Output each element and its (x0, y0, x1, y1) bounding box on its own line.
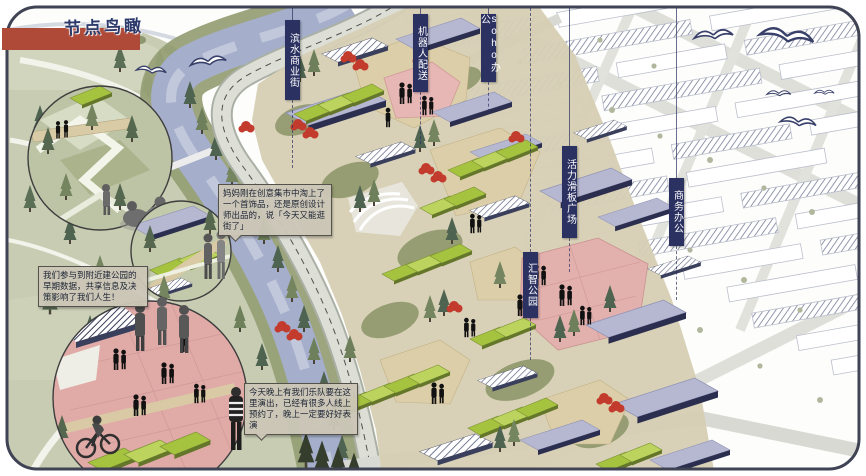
aerial-scene (0, 0, 866, 476)
leader-line (420, 8, 421, 14)
leader-line-dashed (530, 318, 531, 360)
page-title: 节点鸟瞰 (64, 12, 145, 40)
leader-line (676, 8, 677, 178)
leader-line (569, 8, 570, 146)
label-text: 机器人配送 (413, 14, 428, 92)
leader-line-dashed (420, 92, 421, 144)
label-text: 汇智公园 (523, 252, 538, 318)
leader-line (488, 8, 489, 14)
label-waterfront-street: 滨水商业街 (285, 20, 300, 100)
callout-participation: 我们参与到附近建公园的早期数据，共享信息及决策影响了我们人生！ (38, 266, 148, 307)
callout-text: 今天晚上有我们乐队要在这里演出，已经有很多人线上预约了，晚上一定要好好表演 (249, 387, 351, 430)
callout-band: 今天晚上有我们乐队要在这里演出，已经有很多人线上预约了，晚上一定要好好表演 (244, 383, 358, 435)
leader-line-dashed (488, 82, 489, 112)
label-huizhi-park: 汇智公园 (523, 252, 538, 318)
leader-line-dashed (292, 100, 293, 168)
label-text: 滨水商业街 (285, 20, 300, 100)
label-robot-delivery: 机器人配送 (413, 14, 428, 92)
label-text: 商务办公 (669, 178, 684, 246)
callout-market: 妈妈刚在创意集市中淘上了一个首饰品，还是原创设计师出品的，说「今天又能逛街了」 (218, 184, 332, 236)
label-skate-plaza: 活力滑板广场 (562, 146, 577, 238)
leader-line-dashed (569, 238, 570, 272)
label-text: soho办公 (481, 14, 496, 82)
label-soho-office: soho办公 (481, 14, 496, 82)
masterplan-poster: 节点鸟瞰 滨水商业街 机器人配送 soho办公 活力滑板广场 商务办公 汇智公园… (0, 0, 866, 476)
label-business-office: 商务办公 (669, 178, 684, 246)
callout-text: 我们参与到附近建公园的早期数据，共享信息及决策影响了我们人生！ (43, 270, 137, 302)
callout-text: 妈妈刚在创意集市中淘上了一个首饰品，还是原创设计师出品的，说「今天又能逛街了」 (223, 188, 325, 231)
label-text: 活力滑板广场 (562, 146, 577, 238)
leader-line-dashed (676, 246, 677, 300)
leader-line-dashed (530, 8, 531, 252)
leader-line (292, 8, 293, 20)
